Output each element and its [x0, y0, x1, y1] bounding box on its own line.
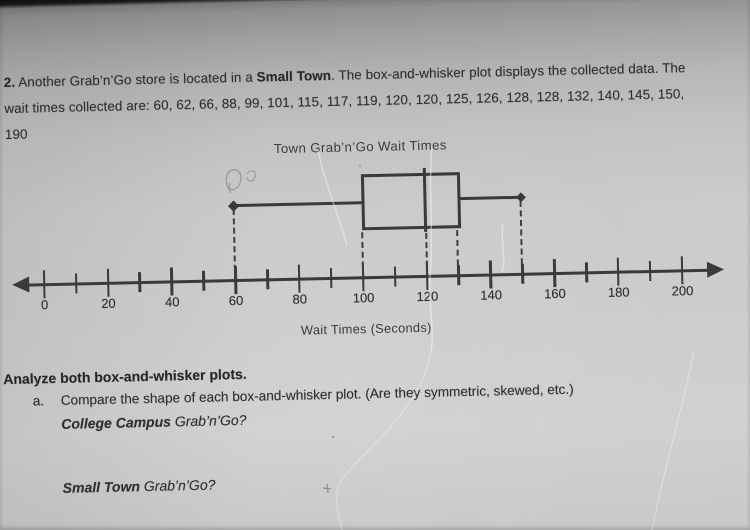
axis-tick-label: 200	[660, 283, 704, 299]
axis-arrow-left	[12, 277, 29, 293]
box-whisker-plot: 020406080100120140160180200	[0, 0, 750, 530]
axis-minor-tick	[202, 271, 205, 291]
axis-tick-label: 120	[405, 288, 449, 304]
dashed-drop-line	[425, 233, 428, 276]
axis-major-tick	[298, 265, 301, 293]
axis-arrow-right	[707, 261, 724, 277]
college-campus-label: College Campus	[61, 413, 171, 431]
axis-major-tick	[617, 258, 620, 286]
axis-minor-tick	[266, 269, 269, 289]
axis-tick-label: 20	[86, 295, 130, 311]
axis-tick-label: 160	[533, 286, 577, 302]
dashed-drop-line	[361, 232, 364, 277]
axis-major-tick	[170, 267, 173, 295]
axis-tick-label: 180	[597, 284, 641, 300]
axis-minor-tick	[138, 272, 141, 292]
axis-tick-label: 40	[150, 294, 194, 310]
axis-minor-tick	[330, 268, 333, 288]
axis-minor-tick	[585, 262, 588, 282]
axis-tick-label: 80	[278, 291, 322, 307]
axis-major-tick	[43, 270, 46, 298]
right-whisker	[458, 196, 522, 200]
worksheet-photo: 2. Another Grab’n’Go store is located in…	[0, 0, 750, 530]
axis-minor-tick	[75, 273, 78, 293]
axis-major-tick	[106, 269, 109, 297]
axis-minor-tick	[649, 261, 652, 281]
small-town-question: Small Town Grab’n’Go?	[63, 477, 216, 496]
axis-tick-label: 100	[341, 290, 385, 306]
axis-tick-label: 0	[23, 297, 67, 313]
small-town-label: Small Town	[63, 478, 141, 496]
axis-tick-label: 140	[469, 287, 513, 303]
dashed-drop-line	[457, 230, 460, 275]
axis-major-tick	[680, 256, 683, 284]
axis-tick-label: 60	[214, 293, 258, 309]
dashed-drop-line	[520, 201, 524, 274]
left-whisker	[234, 201, 362, 207]
dashed-drop-line	[233, 209, 237, 280]
axis-line	[26, 268, 710, 286]
box	[361, 172, 461, 230]
axis-minor-tick	[394, 267, 397, 287]
axis-major-tick	[553, 259, 556, 287]
axis-major-tick	[489, 260, 492, 288]
list-item-letter: a.	[33, 393, 45, 408]
small-town-rest: Grab’n’Go?	[140, 477, 216, 495]
worksheet-sheet: 2. Another Grab’n’Go store is located in…	[0, 0, 750, 530]
college-campus-rest: Grab’n’Go?	[171, 412, 247, 430]
